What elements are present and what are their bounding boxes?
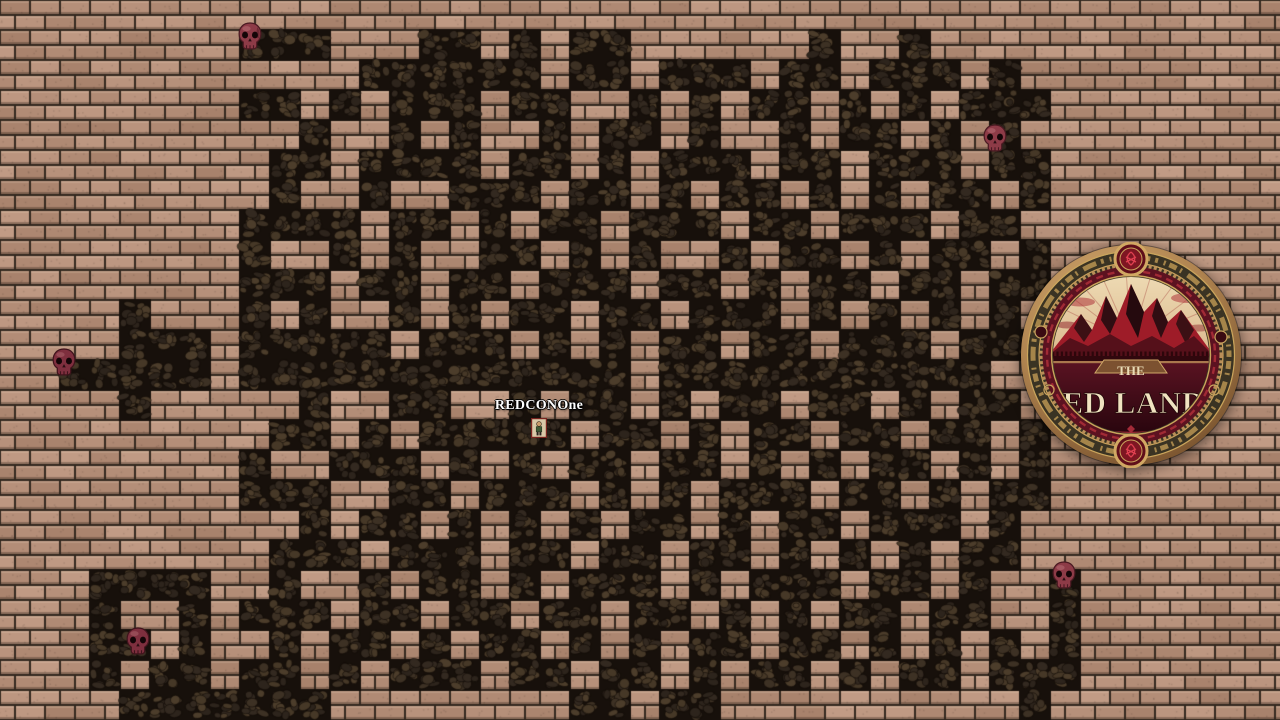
game-screen: REDCONOne	[0, 0, 1280, 720]
player-name-label: REDCONOne	[495, 398, 583, 414]
player-sprite	[531, 418, 547, 438]
logo-bottom-medallion	[1115, 435, 1147, 467]
logo-title-top: THE	[1117, 363, 1144, 378]
red-lands-logo: THE RED LANDS	[1018, 242, 1244, 468]
logo-top-medallion	[1115, 243, 1147, 275]
